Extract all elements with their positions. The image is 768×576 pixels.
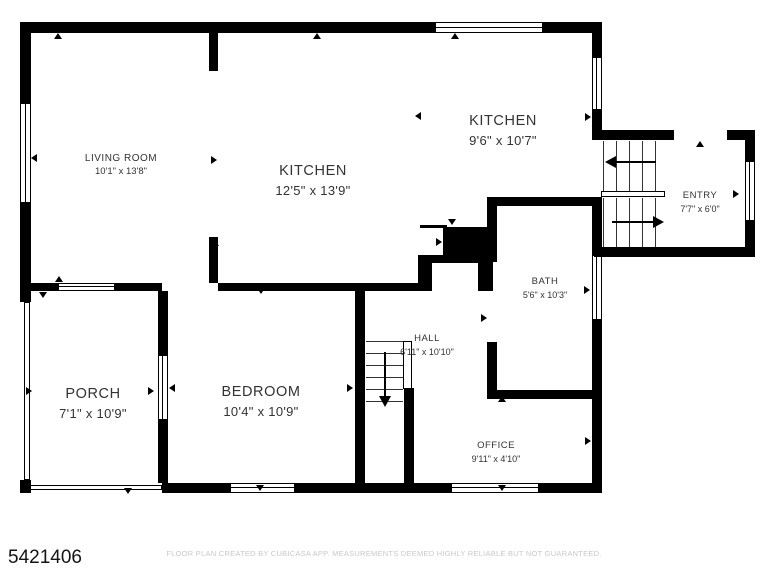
door-marker: [585, 113, 591, 121]
window: [451, 483, 539, 493]
room-name: KITCHEN: [233, 162, 393, 182]
stairs-up-arrow-line: [614, 161, 656, 163]
stairs-down-arrow-head: [653, 216, 664, 228]
door-marker: [538, 200, 546, 206]
porch-post: [20, 290, 31, 302]
wall: [158, 420, 168, 483]
door-marker: [696, 141, 704, 147]
wall: [594, 130, 674, 140]
wall: [355, 283, 365, 493]
wall: [594, 247, 755, 257]
disclaimer-text: FLOOR PLAN CREATED BY CUBICASA APP. MEAS…: [0, 549, 768, 558]
wall: [209, 33, 218, 71]
room-name: OFFICE: [446, 440, 546, 453]
stairs-down-arrow-line: [612, 221, 654, 223]
room-name: LIVING ROOM: [41, 152, 201, 166]
room-name: KITCHEN: [423, 112, 583, 132]
room-label-office: OFFICE 9'11" x 4'10": [446, 440, 546, 465]
door-marker: [257, 288, 265, 294]
room-dims: 9'11" x 4'10": [446, 453, 546, 465]
window-marker: [169, 384, 175, 392]
wall: [727, 130, 755, 140]
room-label-porch: PORCH 7'1" x 10'9": [23, 385, 163, 422]
door-marker: [347, 384, 353, 392]
stairs-down-arrow-head: [379, 396, 391, 407]
wall: [745, 140, 755, 161]
wall: [295, 483, 451, 493]
door-marker: [211, 240, 219, 246]
window: [435, 22, 543, 33]
window: [20, 103, 31, 203]
room-dims: 7'1" x 10'9": [23, 405, 163, 423]
room-name: BEDROOM: [181, 383, 341, 403]
door-marker: [313, 284, 321, 290]
wall: [539, 483, 602, 493]
window-marker: [451, 33, 459, 39]
window-marker: [498, 485, 506, 491]
door-marker: [313, 33, 321, 39]
room-name: PORCH: [23, 385, 163, 405]
door-marker: [406, 440, 412, 448]
wall: [115, 283, 162, 291]
room-label-kitchen-small: KITCHEN 9'6" x 10'7": [423, 112, 583, 149]
floor-plan: LIVING ROOM 10'1" x 13'8" KITCHEN 12'5" …: [0, 0, 768, 576]
room-label-entry: ENTRY 7'7" x 6'0": [650, 190, 750, 215]
room-label-bath: BATH 5'6" x 10'3": [495, 276, 595, 301]
door-marker: [481, 314, 487, 322]
room-label-living-room: LIVING ROOM 10'1" x 13'8": [41, 152, 201, 178]
door-marker: [448, 219, 456, 225]
window: [592, 57, 602, 110]
room-label-bedroom: BEDROOM 10'4" x 10'9": [181, 383, 341, 420]
plan-id: 5421406: [8, 547, 82, 569]
wall: [20, 33, 31, 103]
door-marker: [211, 156, 217, 164]
room-dims: 9'6" x 10'7": [423, 132, 583, 150]
room-dims: 10'1" x 13'8": [41, 166, 201, 179]
door-marker: [585, 437, 591, 445]
porch-screen: [30, 485, 162, 490]
stairs-down-arrow-line: [384, 352, 386, 396]
door-marker: [124, 488, 132, 494]
room-label-kitchen-main: KITCHEN 12'5" x 13'9": [233, 162, 393, 199]
closet-block: [443, 227, 487, 257]
room-dims: 12'5" x 13'9": [233, 182, 393, 200]
room-name: HALL: [377, 333, 477, 346]
window: [58, 283, 115, 291]
stairs-up-arrow-head: [605, 156, 616, 168]
wall: [162, 483, 230, 493]
wall: [218, 283, 363, 291]
wall: [592, 33, 602, 57]
wall: [158, 291, 168, 355]
room-dims: 7'7" x 6'0": [650, 203, 750, 215]
door-marker: [54, 33, 62, 39]
door-marker: [55, 276, 63, 282]
room-dims: 5'6" x 10'3": [495, 289, 595, 301]
door-marker: [436, 238, 442, 246]
wall: [20, 22, 435, 33]
room-name: BATH: [495, 276, 595, 289]
door-marker: [536, 390, 544, 396]
room-dims: 10'4" x 10'9": [181, 403, 341, 421]
wall: [592, 320, 602, 493]
room-name: ENTRY: [650, 190, 750, 203]
wall: [487, 197, 497, 262]
door-marker: [415, 112, 421, 120]
door-marker: [39, 292, 47, 298]
room-dims: 6'11" x 10'10": [377, 346, 477, 358]
wall: [543, 22, 602, 33]
wall: [418, 255, 432, 291]
window-marker: [256, 485, 264, 491]
window-marker: [31, 154, 37, 162]
door-marker: [696, 249, 704, 255]
room-label-hall: HALL 6'11" x 10'10": [377, 333, 477, 358]
door-marker: [498, 396, 506, 402]
wall: [20, 203, 31, 291]
